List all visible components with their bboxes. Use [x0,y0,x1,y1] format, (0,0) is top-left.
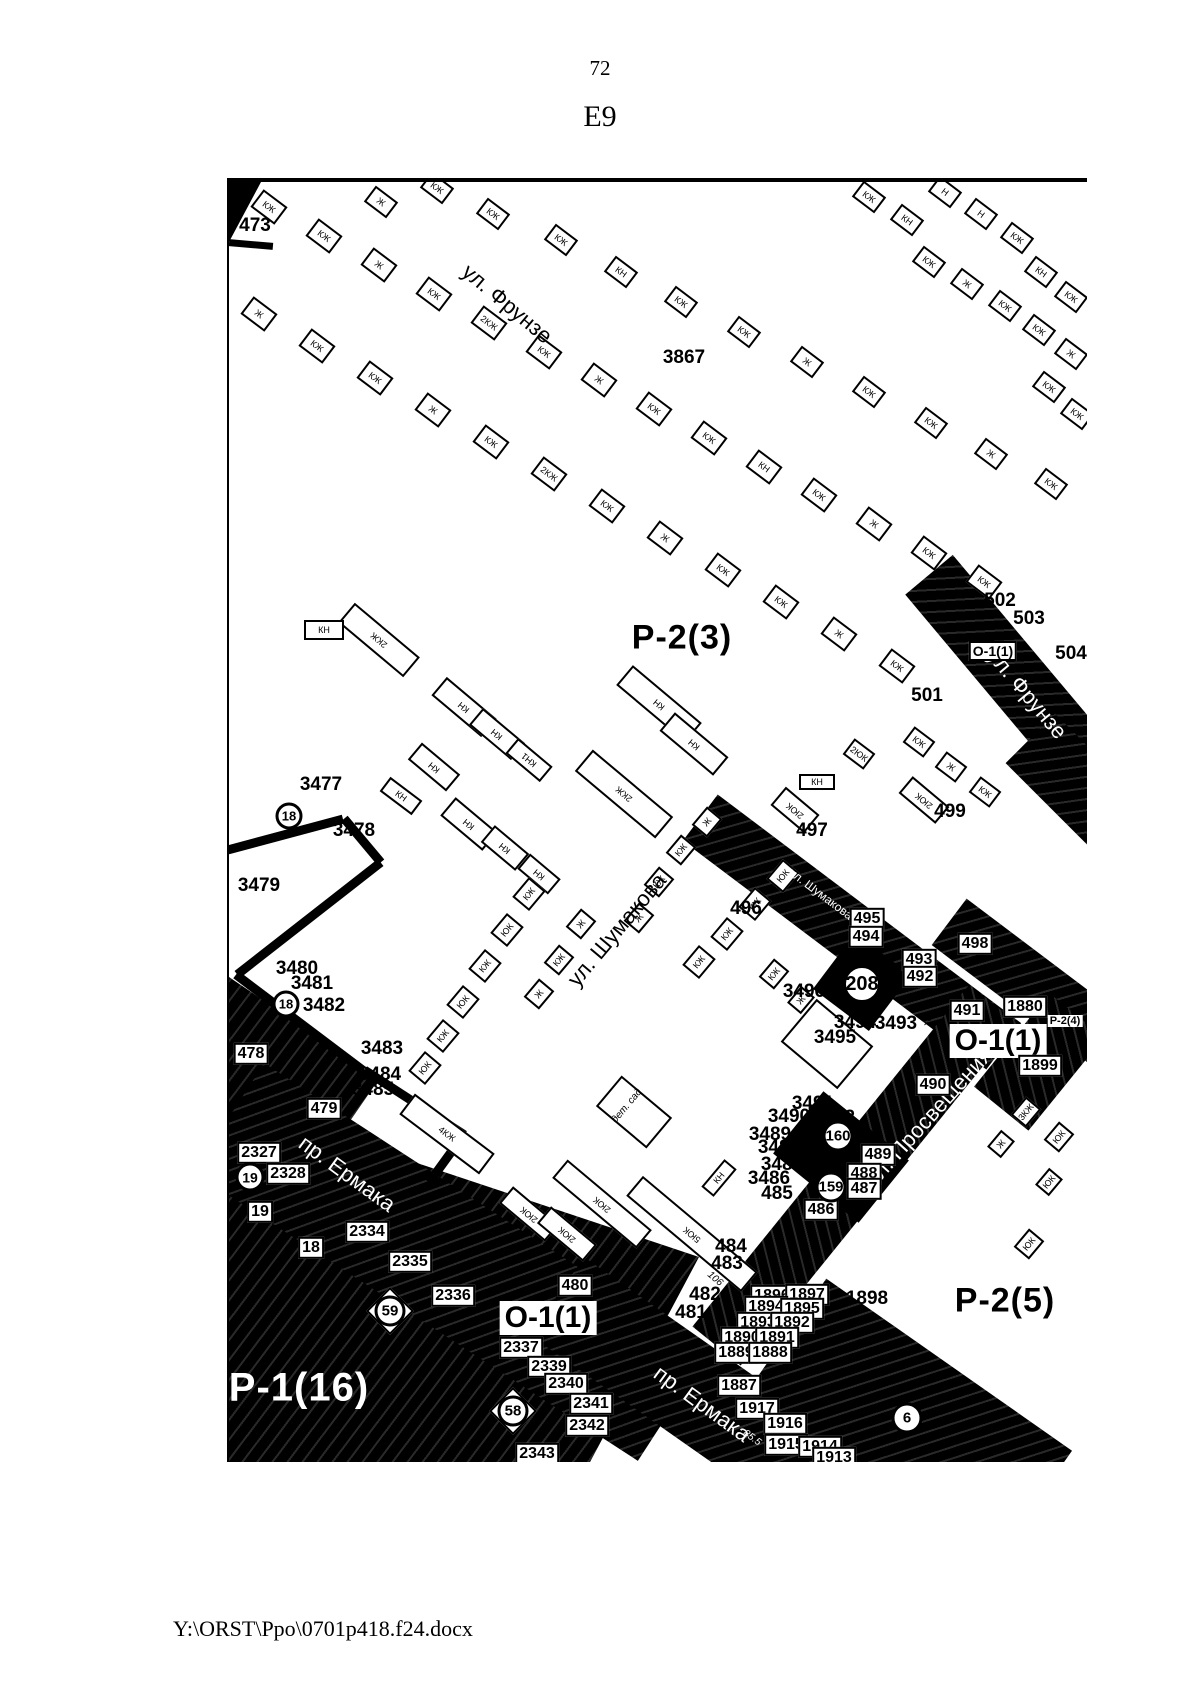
page-number: 72 [0,56,1200,81]
map-label: 481 [675,1302,707,1324]
circled-number: 6 [892,1403,923,1434]
zone-label-o1-1-bottom: О-1(1) [500,1301,597,1335]
building: КЖ [914,407,948,440]
circled-number: 18 [273,991,300,1018]
building-type-label: КЖ [551,952,567,968]
building: КН [380,777,423,815]
map-label: 3495 [814,1027,856,1049]
building: КН [701,1159,736,1197]
building: ЮК [446,985,480,1019]
map-label: 499 [934,801,966,823]
map-label: 3481 [291,973,333,995]
building: КЖ [762,584,799,620]
building: КЖ [298,328,335,364]
building-type-label: КЖ [316,228,332,243]
building-type-label: КЖ [715,562,731,577]
street-label-frunze: ул. Фрунзе [457,259,558,349]
circled-number: 19 [236,1163,265,1192]
building: Ж [414,392,451,428]
building-type-label: КЖ [911,734,927,749]
building: КЖ [426,1019,460,1053]
building-type-label: КЖ [1031,322,1047,337]
building-type-label: Ж [985,448,997,460]
document-page: 72 Е9 КЖКЖЖКЖ2КЖКЖЖКЖКЖКНКЖЖКЖКЖЖКЖКЖКЖК… [0,0,1200,1698]
building-type-label: Ж [427,404,439,416]
map-label: 501 [911,685,943,707]
building: КЖ [710,917,744,951]
map-label: 19 [247,1201,273,1223]
building: КЖ [305,218,342,254]
building-type-label: ЮК [455,994,471,1011]
circled-number: 208 [841,963,883,1005]
map-label: 491 [950,1000,985,1022]
building: Ж [1054,338,1087,371]
circled-number: 160 [823,1121,854,1152]
building: КЖ [1032,371,1066,404]
building-type-label: Ж [659,532,671,544]
building-type-label: КЖ [483,434,499,449]
building-type-label: КН [498,841,513,855]
building: Н [964,198,998,231]
building-type-label: КН [457,700,472,714]
figure-id: Е9 [0,100,1200,134]
building-type-label: Ж [961,278,973,290]
building: Ж [240,296,277,332]
map-label: 18 [298,1237,324,1259]
building: ЮК [1014,1228,1045,1259]
circled-number: 159 [816,1172,847,1203]
building-type-label: 2ЮК [557,1224,578,1243]
building: Ж [935,751,968,783]
building: Ж [820,616,857,652]
building-type-label: 5ЮК [682,1224,703,1243]
building-type-label: КЖ [673,842,689,858]
building-type-label: 2КЖ [539,465,559,483]
building: КЖ [1054,281,1087,314]
building-type-label: КЖ [921,545,937,560]
building: КЖ [727,316,761,349]
building: Ж [360,247,397,283]
building-type-label: Ж [1065,348,1077,360]
building-type-label: КЖ [673,294,689,309]
map-label: 1898 [846,1288,888,1310]
building-type-label: КН [394,789,409,803]
map-label: 1888 [748,1342,792,1364]
building-type-label: КН [318,626,330,635]
building-type-label: КЖ [997,298,1013,313]
building: КЖ [852,181,886,214]
map-label: 3496 [783,981,825,1003]
map-label: 496 [730,898,762,920]
building-type-label: КЖ [691,954,707,970]
map-label: 3493 [875,1013,917,1035]
map-label: 2327 [237,1142,281,1164]
building-type-label: КЖ [811,487,827,502]
map-label: 3867 [663,347,705,369]
building: 2КЖ [575,750,673,839]
building: КН [408,743,460,792]
building-type-label: КЖ [861,189,877,204]
building: КН [890,204,924,237]
circled-number: 18 [276,803,303,830]
building-type-label: КН [712,1171,726,1186]
building-type-label: 3КЖ [1017,1102,1036,1122]
building-type-label: Ж [253,308,265,320]
map-label: 1916 [763,1413,807,1435]
building: Ж [855,506,892,542]
building: ЮК [490,913,524,947]
building-type-label: КЖ [861,384,877,399]
building-type-label: КН [652,697,667,711]
map-label: 480 [558,1275,593,1297]
building: КЖ [588,488,625,524]
building-type-label: КН [811,778,823,787]
building-type-label: Ж [373,259,385,271]
zone-label-r2-3: Р-2(3) [632,619,732,658]
building: КЖ [472,424,509,460]
map-label: 502 [984,590,1016,612]
building: ЮК [408,1051,442,1085]
building-type-label: КЖ [889,658,905,673]
building: КЖ [912,246,946,279]
building-type-label: КЖ [719,926,735,942]
building-type-label: КН [757,460,772,474]
building-type-label: Ж [701,816,713,828]
zone-label-o1-1-right: О-1(1) [950,1024,1047,1058]
building-type-label: 2ЮК [849,745,870,764]
building: КЖ [420,178,454,204]
building: Н [928,178,962,208]
building-type-label: КЖ [736,324,752,339]
map-label: 490 [916,1074,951,1096]
building-type-label: КЖ [1043,476,1059,491]
map-label: 2336 [431,1285,475,1307]
building: КЖ [1022,314,1056,347]
zone-label-r1-16: Р-1(16) [229,1366,369,1411]
map-label: 2328 [266,1163,310,1185]
building-type-label: КЖ [1041,379,1057,394]
building-type-label: Ж [375,196,387,208]
building-type-label: КЖ [701,430,717,445]
map-label: 479 [307,1098,342,1120]
building-type-label: КН [1034,265,1049,279]
building-type-label: Н [976,208,987,219]
building: КЖ [800,477,837,513]
building-type-label: КЖ [367,370,383,385]
building-type-label: КЖ [435,1028,451,1044]
map-label: 492 [903,966,938,988]
building: КЖ [852,376,886,409]
building-type-label: ЮК [1051,1129,1067,1146]
building: КЖ [664,286,698,319]
map-label: 1899 [1018,1055,1062,1077]
map-label: 3477 [300,774,342,796]
building: КЖ [1000,222,1034,255]
building: КЖ [1034,468,1068,501]
zone-label-r2-5: Р-2(5) [955,1282,1055,1321]
building-type-label: КЖ [477,958,493,974]
map-label: 485 [761,1183,793,1205]
map-label: 2343 [515,1443,559,1462]
building-type-label: КН [462,817,477,831]
building: Ж [364,186,398,219]
building-type-label: КЖ [1063,289,1079,304]
building-type-label: КН1 [520,751,539,769]
map-label: 2341 [569,1393,613,1415]
building: КЖ [415,276,452,312]
right-edge-black-blob [1006,714,1087,891]
map-label: 494 [849,926,884,948]
building-type-label: КЖ [309,338,325,353]
building: КЖ [544,224,578,257]
map-label: 3478 [333,820,375,842]
map-label: 1880 [1003,996,1047,1018]
building: Ж [524,978,555,1009]
building: КН [1024,256,1058,289]
building-type-label: 2ЮК [592,1194,613,1213]
building-type-label: ЮК [499,922,515,939]
building-type-label: КЖ [261,199,277,214]
building: Ж [987,1130,1015,1158]
building: ЮК [1044,1121,1075,1152]
building-type-label: КЖ [553,232,569,247]
building-type-label: КЖ [485,206,501,221]
building-type-label: ЮК [417,1060,433,1077]
building-type-label: 2КЖ [369,631,389,650]
building-type-label: КЖ [1009,230,1025,245]
building-type-label: Ж [533,988,545,1000]
building: КЖ [476,198,510,231]
building: Ж [646,520,683,556]
map-label: 473 [239,215,271,237]
building: КЖ [878,648,915,684]
building: КН [304,620,344,640]
building: 2ЮК [843,738,876,770]
map-label: 1913 [812,1447,856,1462]
building [596,1075,672,1148]
building-type-label: 2КЖ [479,314,499,332]
map-label: 497 [796,820,828,842]
building: Ж [566,908,597,939]
building-type-label: ЮК [1021,1236,1037,1253]
map-canvas: КЖКЖЖКЖ2КЖКЖЖКЖКЖКНКЖЖКЖКЖЖКЖКЖКЖКНКЖКЖЖ… [227,178,1087,1462]
building: КЖ [682,945,716,979]
building-type-label: КЖ [921,254,937,269]
building: ЮК [1035,1168,1063,1196]
building-type-label: ЮК [1041,1174,1057,1191]
building: Ж [950,268,984,301]
map-label: 2334 [345,1221,389,1243]
building: Ж [790,346,824,379]
building: КЖ [903,726,936,758]
building-type-label: КЖ [599,498,615,513]
building-type-label: КН [900,213,915,227]
building-type-label: Н [940,186,951,197]
building-type-label: 2ЮК [785,800,806,819]
document-footer-path: Y:\ORST\Ppo\0701p418.f24.docx [173,1616,473,1642]
zone-boundary-segment [229,239,273,250]
building-type-label: КН [427,760,442,774]
map-label: 498 [958,933,993,955]
building-type-label: КН [532,867,547,881]
circled-number: 59 [375,1296,406,1327]
building-type-label: Ж [801,356,813,368]
building-type-label: Ж [575,918,587,930]
map-label: 3479 [238,875,280,897]
building: КЖ [356,360,393,396]
zone-label-r2-4: Р-2(4) [1048,1015,1083,1027]
building-type-label: КН [687,737,702,751]
building: 2КЖ [530,456,567,492]
building: КЖ [988,290,1022,323]
building: КН [604,256,638,289]
building-type-label: КЖ [646,401,662,416]
circled-number: 58 [498,1396,529,1427]
map-label: 2342 [565,1415,609,1437]
building-type-label: КЖ [426,286,442,301]
building-type-label: КЖ [773,594,789,609]
building-type-label: КН [490,727,505,741]
map-label: 503 [1013,608,1045,630]
building-type-label: 2ЮК [914,790,935,809]
map-label: 3485 [352,1079,394,1101]
map-label: 478 [234,1043,269,1065]
building: КЖ [635,391,672,427]
building-type-label: КЖ [429,180,445,195]
building: КН1 [505,738,552,782]
building: КЖ [690,420,727,456]
building-type-label: Ж [833,628,845,640]
building-type-label: Ж [995,1138,1007,1150]
building-type-label: Ж [945,761,957,773]
map-label: 504 [1055,643,1087,665]
building-type-label: КЖ [976,574,992,589]
building: КЖ [1060,398,1087,431]
building-type-label: КЖ [923,415,939,430]
building: КЖ [704,552,741,588]
building: КЖ [468,949,502,983]
map-label: 1887 [717,1375,761,1397]
building-type-label: КЖ [521,886,537,902]
building: Ж [580,362,617,398]
building: КН [745,449,782,485]
zone-label-o1-1-small: О-1(1) [969,641,1017,661]
map-label: 487 [847,1178,882,1200]
map-label: 3482 [303,995,345,1017]
map-label: 2335 [388,1251,432,1273]
building: КЖ [969,776,1002,808]
building-type-label: 2КЖ [614,785,634,804]
building: 2КЖ [338,603,420,678]
building-type-label: КЖ [977,784,993,799]
building: КН [799,774,835,790]
building-type-label: КЖ [766,966,782,982]
building-type-label: Ж [868,518,880,530]
building: Ж [974,438,1008,471]
map-label: 3483 [361,1038,403,1060]
building-type-label: КЖ [1069,406,1085,421]
building-type-label: 2ЮК [519,1204,540,1223]
building-type-label: 4КЖ [437,1125,457,1143]
building-type-label: Ж [593,374,605,386]
building-type-label: КН [614,265,629,279]
